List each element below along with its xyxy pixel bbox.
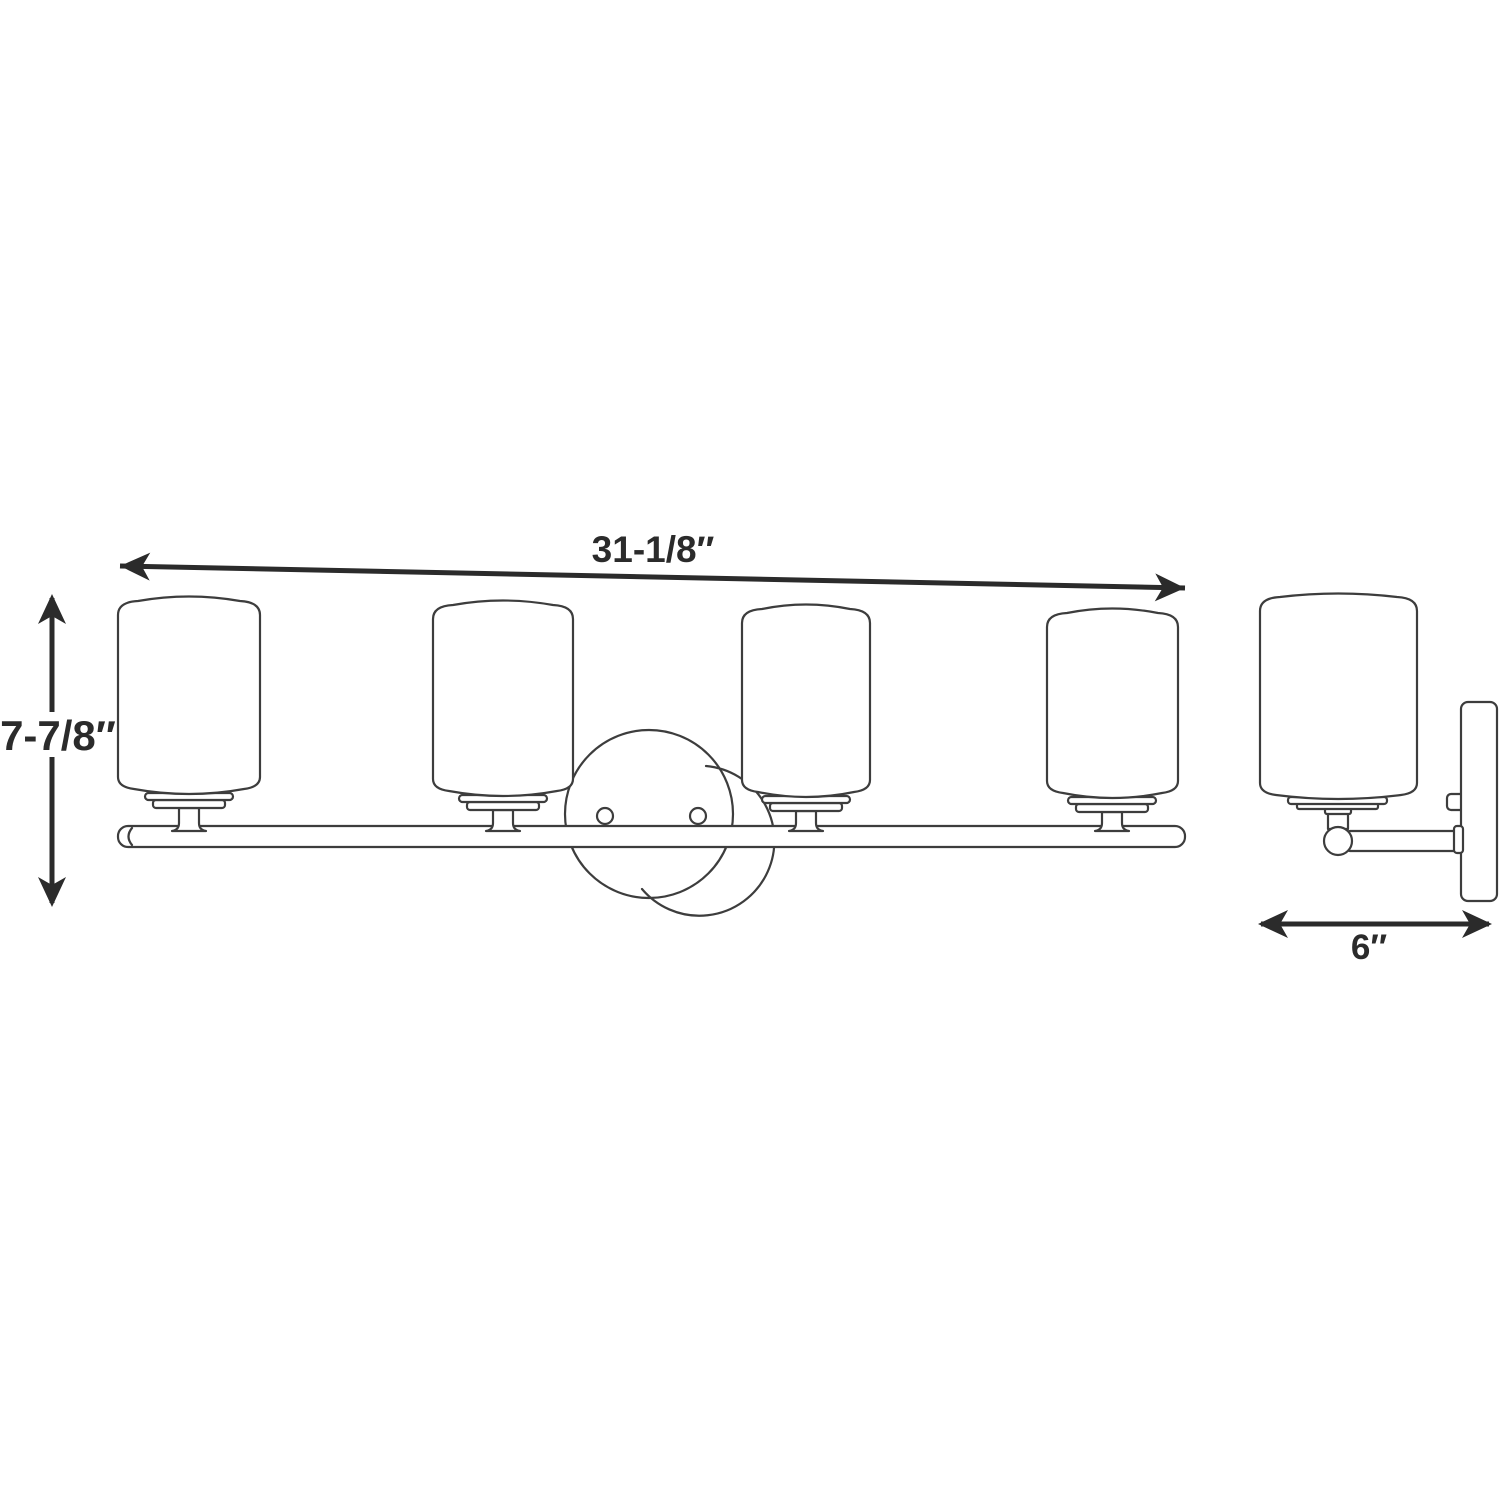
- shade-3-glass: [742, 605, 870, 798]
- shade-1-glass: [118, 597, 260, 795]
- side-view: [1260, 594, 1497, 902]
- shade-4-holder-lower: [1076, 804, 1148, 812]
- side-ball-joint: [1324, 827, 1352, 855]
- shade-2-stem: [486, 810, 520, 831]
- side-arm-flange: [1454, 826, 1463, 853]
- shade-2-glass: [433, 601, 573, 797]
- depth-dimension-label: 6″: [1351, 928, 1387, 967]
- shade-4-glass: [1047, 609, 1178, 799]
- vanity-light-line-drawing: 31-1/8″ 7-7/8″ 6″: [0, 0, 1500, 1500]
- dimension-diagram: 31-1/8″ 7-7/8″ 6″: [0, 0, 1500, 1500]
- shade-2-holder-lower: [467, 802, 539, 810]
- width-dimension: 31-1/8″: [120, 529, 1186, 602]
- front-shade-2: [433, 601, 573, 832]
- fixture-bar-body: [118, 826, 1185, 847]
- screw-hole-right: [690, 808, 706, 824]
- shade-3-holder-lower: [770, 803, 842, 811]
- width-dimension-label: 31-1/8″: [592, 529, 715, 570]
- mounting-plate-outline: [565, 730, 733, 898]
- shade-4-stem: [1095, 812, 1129, 831]
- height-dimension: 7-7/8″: [0, 594, 116, 907]
- screw-hole-left: [597, 808, 613, 824]
- height-dimension-label: 7-7/8″: [0, 712, 116, 759]
- shade-1-stem: [172, 808, 206, 831]
- side-arm: [1348, 831, 1458, 851]
- front-shade-1: [118, 597, 260, 832]
- depth-dimension: 6″: [1258, 910, 1492, 967]
- front-shade-4: [1047, 609, 1178, 832]
- side-shade-glass: [1260, 594, 1417, 800]
- shade-3-stem: [789, 811, 823, 831]
- side-wall-plate: [1461, 702, 1497, 901]
- front-view: [118, 597, 1185, 916]
- shade-1-holder-lower: [153, 800, 225, 808]
- fixture-bar: [118, 826, 1185, 847]
